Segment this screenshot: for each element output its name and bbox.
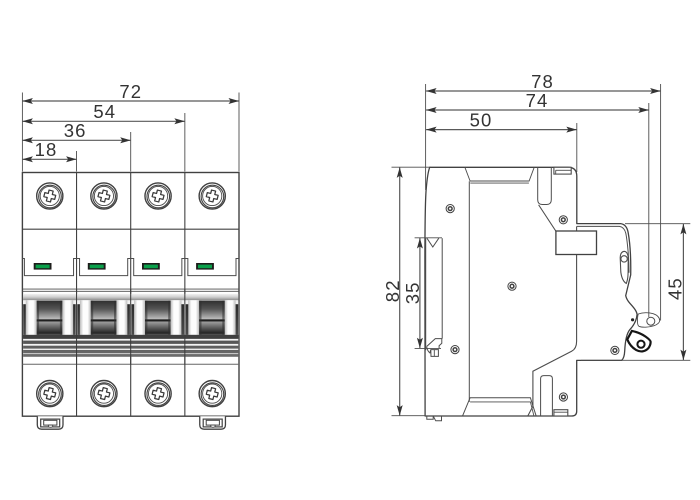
- svg-text:72: 72: [119, 81, 142, 102]
- svg-text:45: 45: [665, 277, 686, 300]
- svg-text:74: 74: [526, 90, 549, 111]
- svg-text:35: 35: [402, 282, 423, 305]
- svg-text:36: 36: [64, 120, 87, 141]
- svg-text:78: 78: [531, 71, 554, 92]
- svg-text:50: 50: [470, 109, 493, 130]
- svg-text:82: 82: [382, 279, 403, 302]
- svg-text:54: 54: [93, 101, 116, 122]
- svg-text:18: 18: [35, 139, 58, 160]
